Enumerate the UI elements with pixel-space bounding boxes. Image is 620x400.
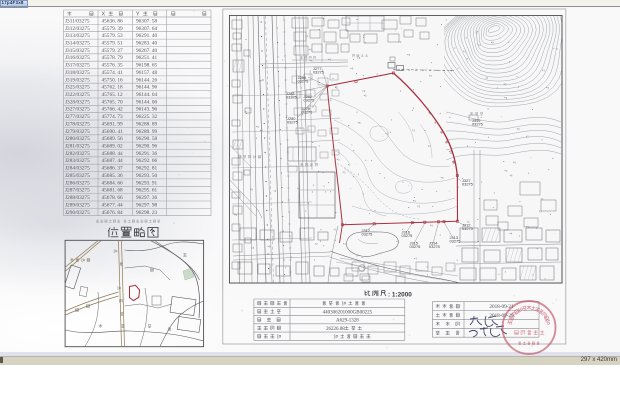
svg-text:96291. 40: 96291. 40 xyxy=(136,33,158,39)
svg-text:96288. 89: 96288. 89 xyxy=(136,121,158,127)
svg-text:J318/03275: J318/03275 xyxy=(65,70,90,76)
svg-text:J277/03275: J277/03275 xyxy=(65,114,90,120)
svg-text:96283. 40: 96283. 40 xyxy=(136,41,158,47)
svg-text:45689. 02: 45689. 02 xyxy=(102,144,124,150)
svg-text:J279/03275: J279/03275 xyxy=(65,129,90,135)
svg-text:03275: 03275 xyxy=(462,182,473,187)
svg-text:45766. 42: 45766. 42 xyxy=(102,107,124,113)
svg-text:Y: Y xyxy=(136,12,140,18)
svg-text:J281/03275: J281/03275 xyxy=(65,144,90,150)
svg-text:96307. 64: 96307. 64 xyxy=(136,26,158,32)
svg-text:J316/03275: J316/03275 xyxy=(65,55,90,61)
svg-text:96292. 66: 96292. 66 xyxy=(136,158,158,164)
svg-text:45678. 66: 45678. 66 xyxy=(102,195,124,201)
svg-text:45579. 51: 45579. 51 xyxy=(102,41,124,47)
svg-text:J285/03275: J285/03275 xyxy=(65,173,90,179)
svg-text:03275: 03275 xyxy=(450,239,461,244)
svg-text:440306201000GB00225: 440306201000GB00225 xyxy=(323,310,373,315)
svg-text:45750. 16: 45750. 16 xyxy=(102,77,124,83)
svg-text:96267. 40: 96267. 40 xyxy=(136,48,158,54)
svg-text:A629-1328: A629-1328 xyxy=(336,319,359,324)
svg-text:96157. 48: 96157. 48 xyxy=(136,70,158,76)
svg-text:45685. 36: 45685. 36 xyxy=(102,173,124,179)
svg-text:J280/03275: J280/03275 xyxy=(65,136,90,142)
svg-text:96291. 36: 96291. 36 xyxy=(136,151,158,157)
svg-text:45765. 12: 45765. 12 xyxy=(102,92,124,98)
svg-text:J312/03275: J312/03275 xyxy=(65,26,90,32)
svg-text:45636. 86: 45636. 86 xyxy=(102,18,124,24)
svg-text:96198. 65: 96198. 65 xyxy=(136,63,158,69)
svg-text:J327/03275: J327/03275 xyxy=(65,107,90,113)
svg-text:96289. 99: 96289. 99 xyxy=(136,129,158,135)
svg-text:45684. 66: 45684. 66 xyxy=(102,180,124,186)
svg-text:96143. 96: 96143. 96 xyxy=(136,107,158,113)
svg-text:45691. 99: 45691. 99 xyxy=(102,121,124,127)
svg-text:96307. 58: 96307. 58 xyxy=(136,18,158,24)
svg-text:45774. 73: 45774. 73 xyxy=(102,114,124,120)
svg-text:J325/03275: J325/03275 xyxy=(65,85,90,91)
svg-text:96144. 96: 96144. 96 xyxy=(136,85,158,91)
svg-text:J314/03275: J314/03275 xyxy=(65,41,90,47)
svg-text:03275: 03275 xyxy=(472,122,483,127)
svg-text:45690. 41: 45690. 41 xyxy=(102,129,124,135)
svg-text:45579. 53: 45579. 53 xyxy=(102,33,124,39)
svg-text:96293. 50: 96293. 50 xyxy=(136,173,158,179)
svg-text:96290. 96: 96290. 96 xyxy=(136,144,158,150)
svg-text:26226.08: 26226.08 xyxy=(326,327,345,332)
svg-text:03275: 03275 xyxy=(429,244,440,249)
svg-text:45686. 37: 45686. 37 xyxy=(102,166,124,172)
svg-text:: 1:2000: : 1:2000 xyxy=(388,291,412,298)
svg-text:45688. 44: 45688. 44 xyxy=(102,151,124,157)
svg-text:96293. 91: 96293. 91 xyxy=(136,180,158,186)
svg-text:J283/03275: J283/03275 xyxy=(65,158,90,164)
svg-text:96144. 00: 96144. 00 xyxy=(136,99,158,105)
svg-text:96297. 98: 96297. 98 xyxy=(136,202,158,208)
svg-text:45681. 68: 45681. 68 xyxy=(102,188,124,194)
svg-text:J317/03275: J317/03275 xyxy=(65,63,90,69)
svg-text:45579. 39: 45579. 39 xyxy=(102,26,124,32)
svg-text:J286/03275: J286/03275 xyxy=(65,180,90,186)
svg-text:45576. 35: 45576. 35 xyxy=(102,63,124,69)
svg-text:J290/03275: J290/03275 xyxy=(65,210,90,216)
svg-text:J313/03275: J313/03275 xyxy=(65,33,90,39)
svg-text:45687. 44: 45687. 44 xyxy=(102,158,124,164)
svg-text:J284/03275: J284/03275 xyxy=(65,166,90,172)
svg-text:96251. 41: 96251. 41 xyxy=(136,55,158,61)
svg-text:J287/03275: J287/03275 xyxy=(65,188,90,194)
svg-text:96297. 36: 96297. 36 xyxy=(136,195,158,201)
svg-text:J315/03275: J315/03275 xyxy=(65,48,90,54)
svg-text:03275: 03275 xyxy=(462,226,473,231)
svg-text:45762. 18: 45762. 18 xyxy=(102,85,124,91)
svg-text:03275: 03275 xyxy=(402,233,413,238)
svg-text:J319/03275: J319/03275 xyxy=(65,77,90,83)
svg-text:96144. 04: 96144. 04 xyxy=(136,92,158,98)
svg-text:J311/03275: J311/03275 xyxy=(65,18,90,24)
svg-text:96295. 61: 96295. 61 xyxy=(136,188,158,194)
svg-text:J322/03275: J322/03275 xyxy=(65,92,90,98)
svg-text:J289/03275: J289/03275 xyxy=(65,202,90,208)
svg-text:03275: 03275 xyxy=(287,120,298,125)
svg-text:J288/03275: J288/03275 xyxy=(65,195,90,201)
svg-text:96292. 81: 96292. 81 xyxy=(136,166,158,172)
svg-text:45689. 56: 45689. 56 xyxy=(102,136,124,142)
svg-text:45677. 44: 45677. 44 xyxy=(102,202,124,208)
svg-text:96144. 26: 96144. 26 xyxy=(136,77,158,83)
svg-text:J278/03275: J278/03275 xyxy=(65,121,90,127)
svg-text:J282/03275: J282/03275 xyxy=(65,151,90,157)
svg-text:45579. 27: 45579. 27 xyxy=(102,48,124,54)
svg-text:96298. 23: 96298. 23 xyxy=(136,210,158,216)
svg-text:96290. 58: 96290. 58 xyxy=(136,136,158,142)
svg-text:45574. 41: 45574. 41 xyxy=(102,70,124,76)
svg-text:45578. 79: 45578. 79 xyxy=(102,55,124,61)
svg-text:03275: 03275 xyxy=(313,70,324,75)
svg-text:96225. 32: 96225. 32 xyxy=(136,114,158,120)
svg-text:45676. 84: 45676. 84 xyxy=(102,210,124,216)
svg-text:03275: 03275 xyxy=(410,244,421,249)
svg-text:03275: 03275 xyxy=(286,95,297,100)
svg-text:J328/03275: J328/03275 xyxy=(65,99,90,105)
svg-text:X: X xyxy=(102,12,106,18)
svg-text:45765. 70: 45765. 70 xyxy=(102,99,124,105)
svg-text:03275: 03275 xyxy=(304,98,315,103)
